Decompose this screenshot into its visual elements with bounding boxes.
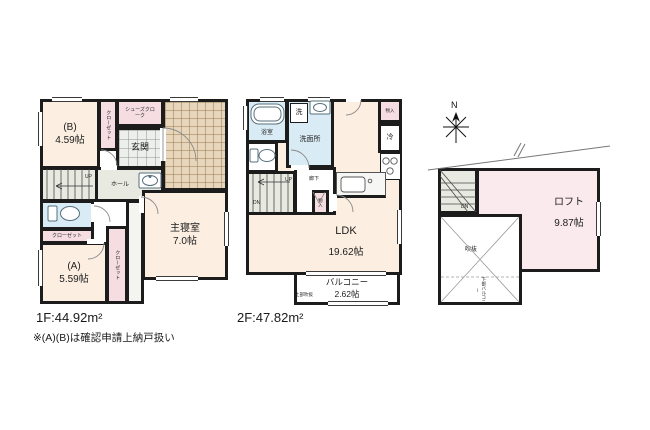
window-marker	[243, 106, 248, 130]
door-gap-entry-2f	[346, 97, 361, 102]
door-gap-lavatory	[291, 165, 309, 170]
door-gap-toilet-1f	[91, 204, 96, 222]
window-marker	[397, 210, 402, 244]
loft-label-wrap: ロフト 9.87帖	[537, 191, 601, 233]
window-marker	[328, 301, 388, 306]
void-above-note: 上部吹抜	[295, 292, 313, 298]
window-marker	[52, 97, 82, 102]
window-marker	[170, 97, 198, 102]
window-marker	[156, 276, 198, 281]
door-gap-room-a	[87, 239, 104, 244]
void-note-label: 下部バルコニー	[475, 275, 487, 305]
void-label: 吹抜	[465, 247, 477, 255]
door-gap-ldk	[332, 194, 337, 211]
window-marker	[38, 112, 43, 146]
stairs-loft: DN	[438, 168, 478, 214]
door-gap-master	[139, 196, 144, 213]
window-marker	[306, 271, 386, 276]
void-area: 吹抜 下部バルコニー	[438, 214, 522, 305]
window-marker	[260, 97, 284, 102]
loft-size: 9.87帖	[554, 218, 583, 229]
door-gap-entrance	[160, 128, 166, 161]
door-gap-room-b	[101, 165, 117, 170]
loft-label: ロフト	[554, 197, 584, 208]
stairs-loft-dn-label: DN	[461, 204, 468, 211]
plan-loft: ロフト 9.87帖 DN 吹抜 下部バルコニー	[0, 0, 650, 430]
window-marker	[308, 97, 330, 102]
window-marker	[224, 212, 229, 246]
window-marker	[38, 250, 43, 286]
window-marker	[596, 202, 601, 236]
floorplan-canvas: (B) 4.59帖 クローゼット シューズクローク 玄関 ホール UP クローゼ…	[0, 0, 650, 430]
